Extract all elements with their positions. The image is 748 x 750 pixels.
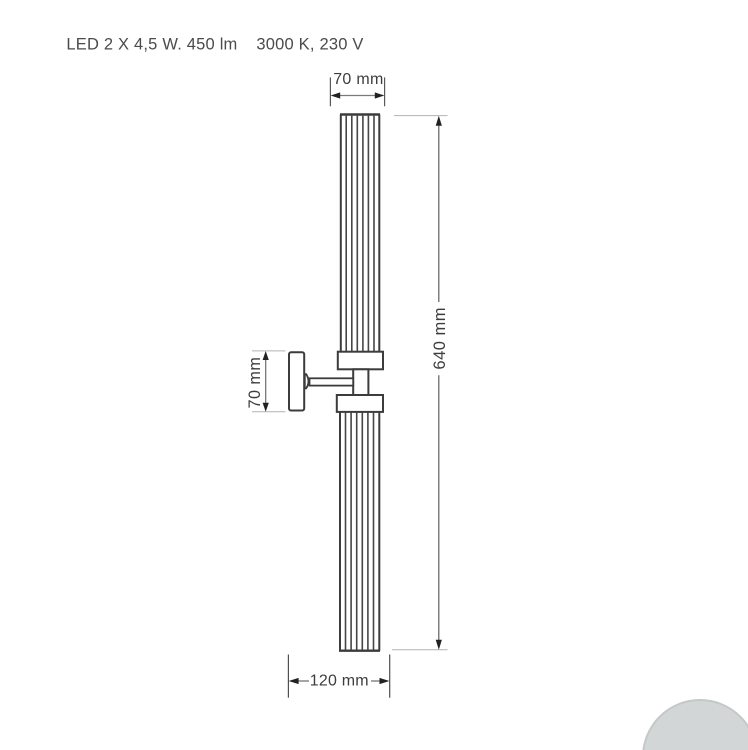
svg-text:LED 2 X 4,5 W. 450 lm: LED 2 X 4,5 W. 450 lm — [66, 36, 237, 54]
svg-text:120 mm: 120 mm — [310, 672, 369, 689]
svg-text:70 mm: 70 mm — [246, 357, 264, 409]
svg-text:640 mm: 640 mm — [431, 307, 449, 370]
svg-text:70 mm: 70 mm — [333, 71, 383, 88]
svg-text:3000 K, 230 V: 3000 K, 230 V — [256, 36, 363, 54]
